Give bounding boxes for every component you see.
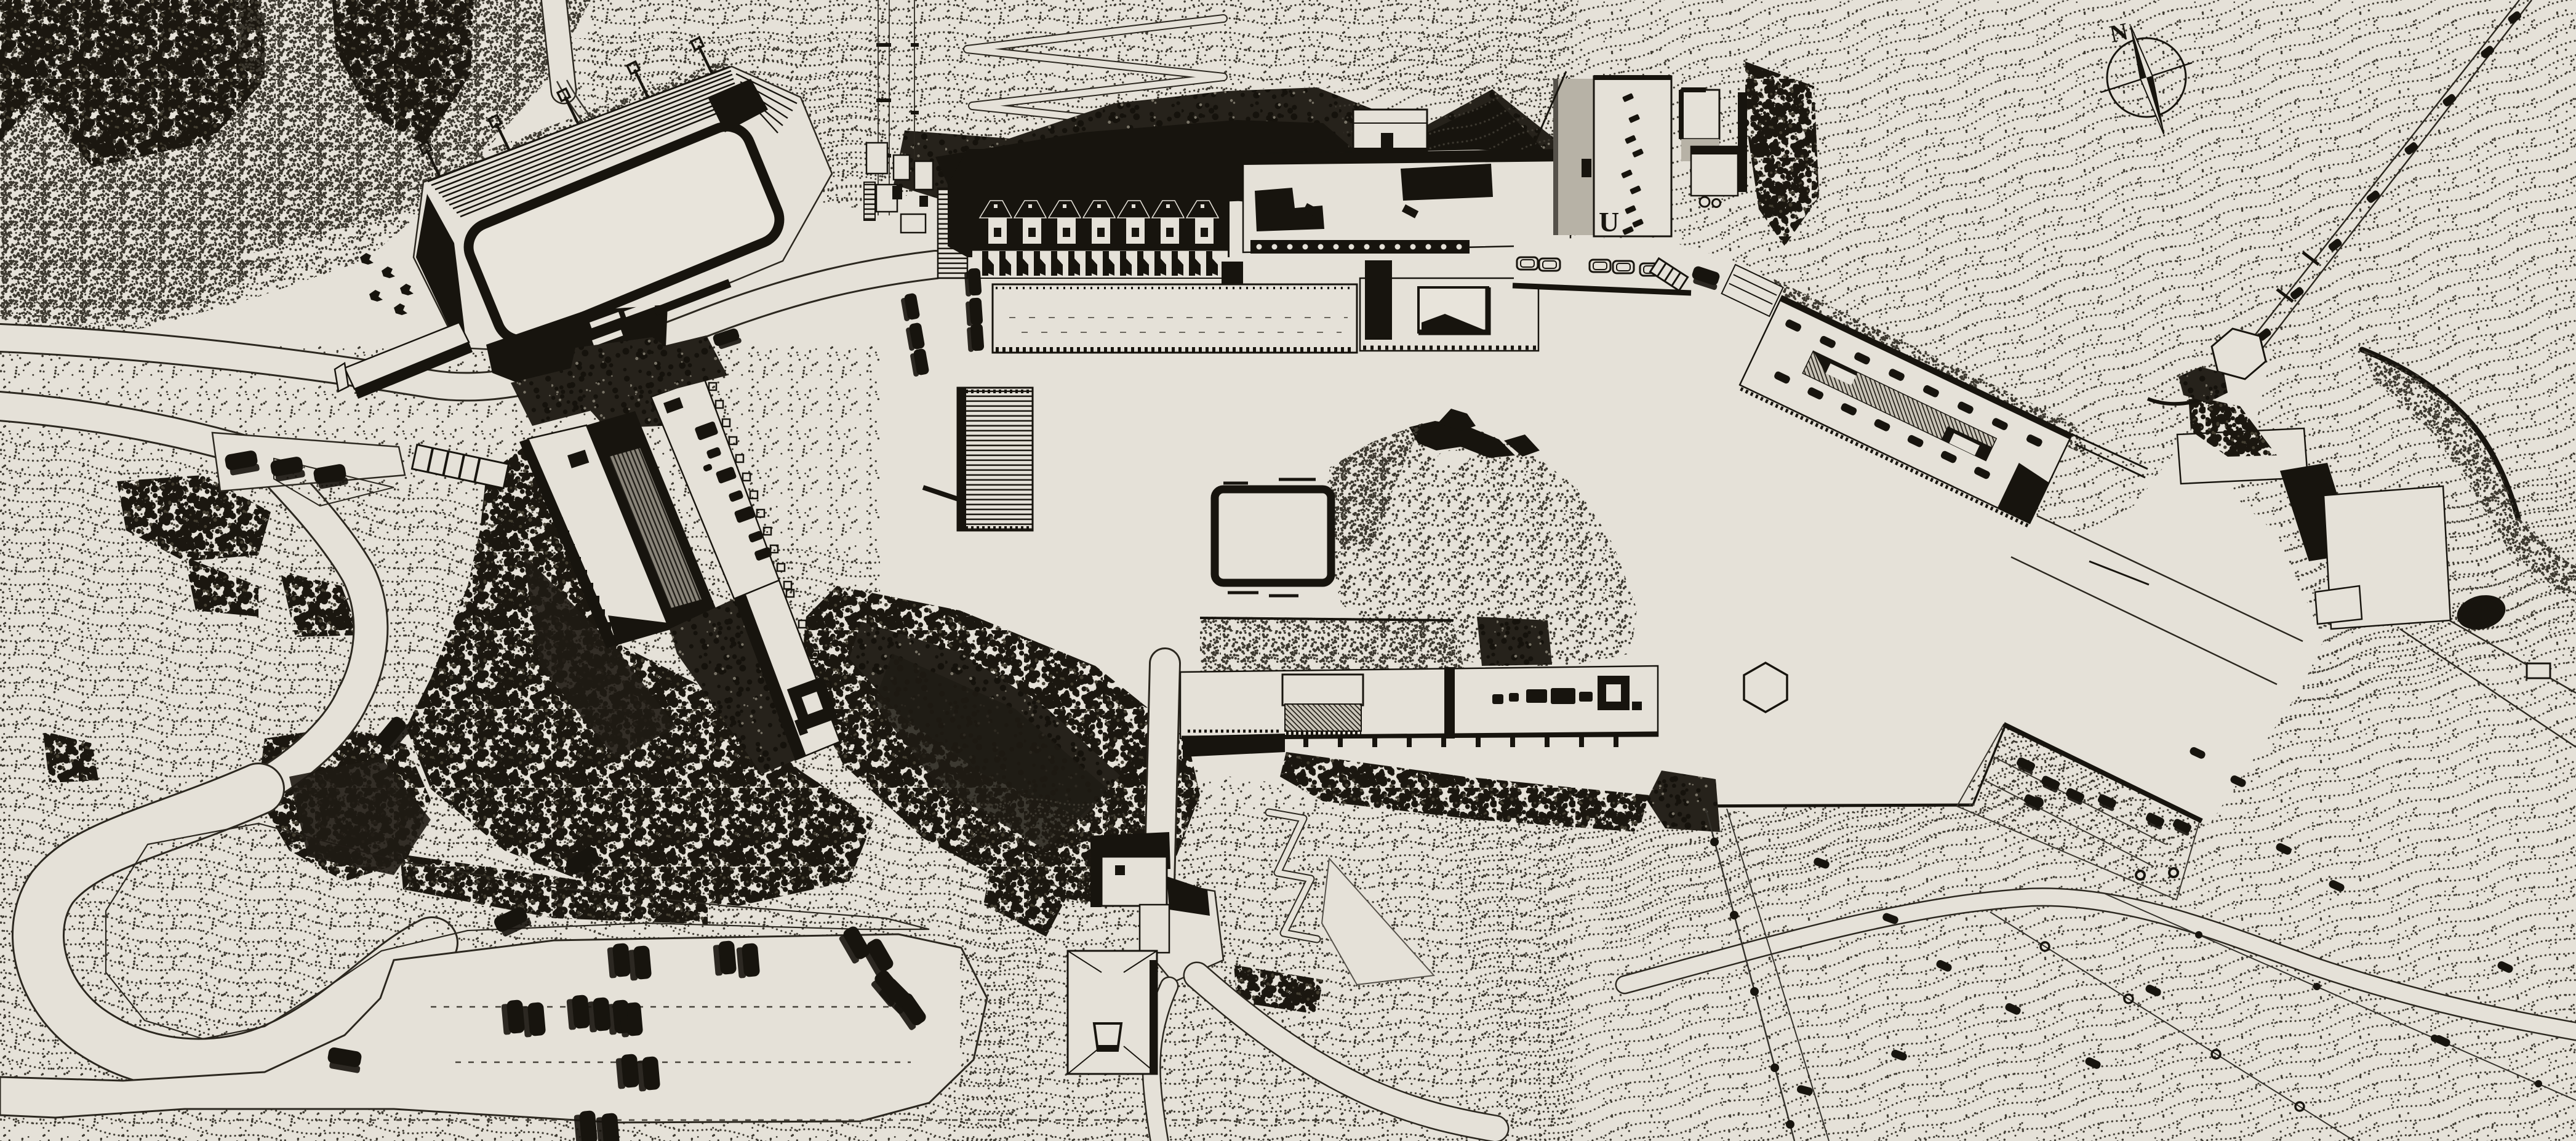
svg-text:U: U	[1599, 206, 1619, 238]
